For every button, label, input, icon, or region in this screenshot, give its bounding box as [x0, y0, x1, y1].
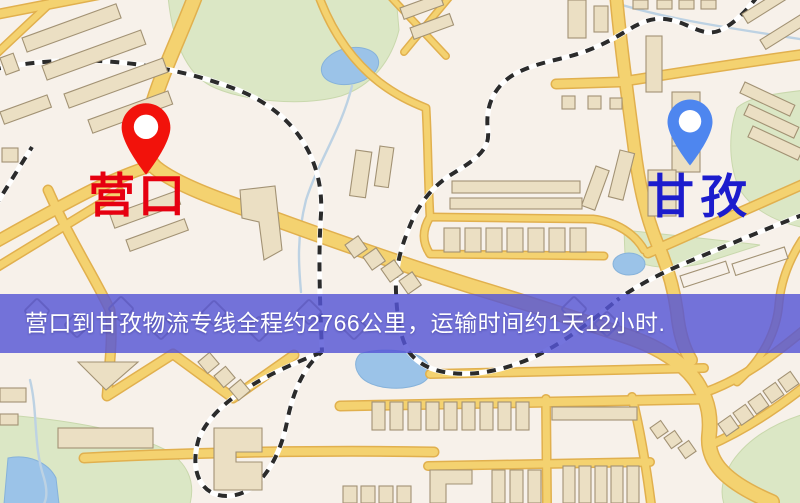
- info-banner-text: 营口到甘孜物流专线全程约2766公里，运输时间约1天12小时.: [0, 294, 800, 353]
- destination-pin[interactable]: [666, 97, 714, 168]
- red-teardrop-pin-icon: [120, 101, 172, 177]
- map-screenshot: 营口 甘孜 营口到甘孜物流专线全程约2766公里，运输时间约1天12小时.: [0, 0, 800, 503]
- blue-teardrop-pin-icon: [666, 97, 714, 168]
- map-canvas: [0, 0, 800, 503]
- lake: [356, 350, 430, 388]
- origin-label: 营口: [88, 174, 188, 221]
- destination-label: 甘孜: [647, 175, 753, 222]
- info-banner: 营口到甘孜物流专线全程约2766公里，运输时间约1天12小时.: [0, 294, 800, 353]
- origin-pin[interactable]: [120, 101, 172, 177]
